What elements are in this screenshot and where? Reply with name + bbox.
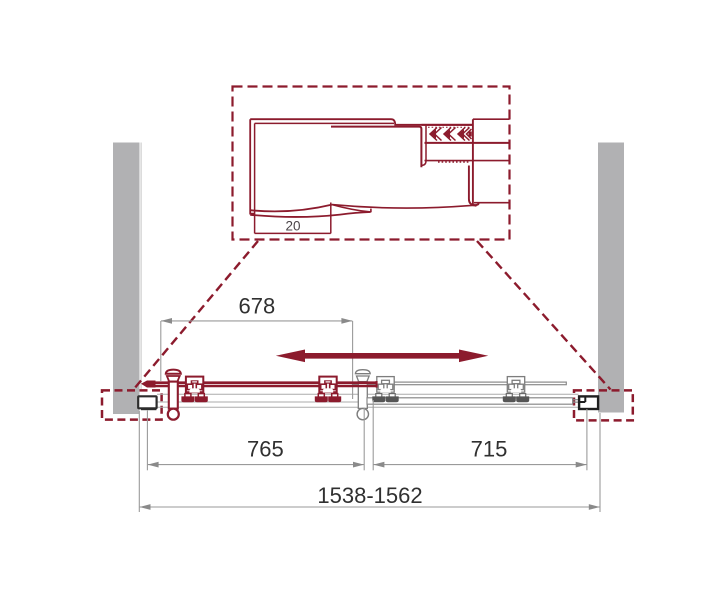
svg-text:765: 765: [247, 436, 284, 461]
svg-text:678: 678: [239, 294, 276, 319]
svg-text:1538-1562: 1538-1562: [317, 483, 422, 508]
svg-text:715: 715: [471, 436, 508, 461]
svg-text:20: 20: [285, 219, 300, 234]
